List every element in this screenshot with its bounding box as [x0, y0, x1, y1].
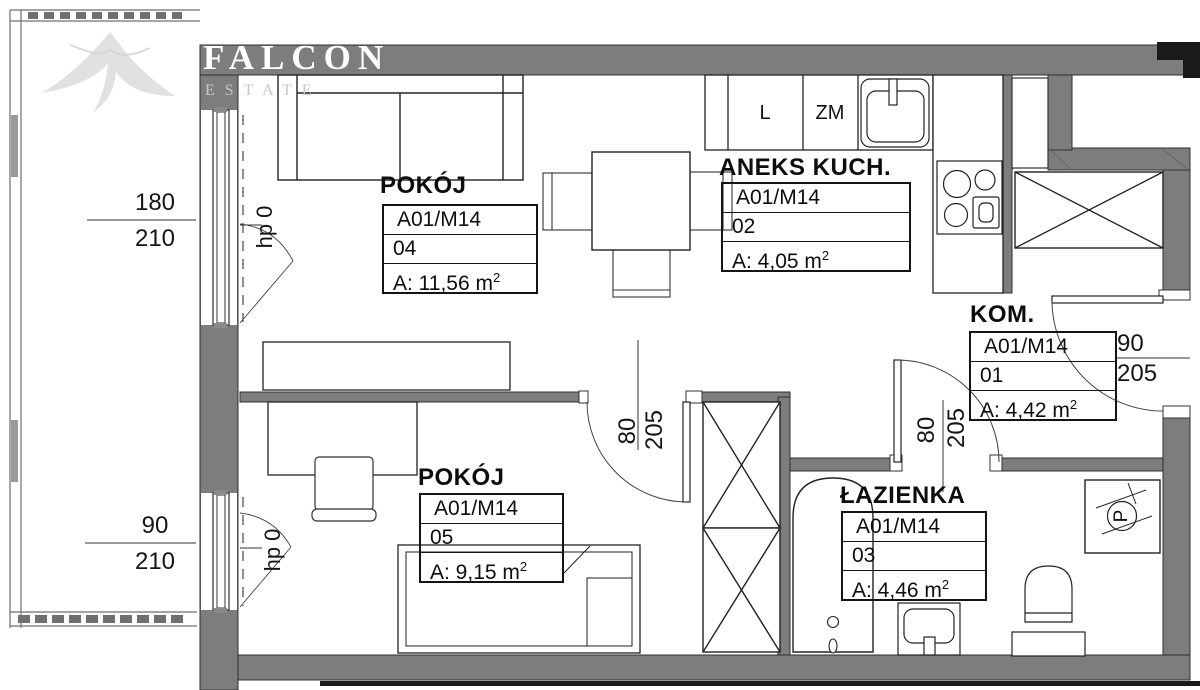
- fridge-label: L: [740, 102, 790, 125]
- room-title-kom: KOM.: [970, 301, 1035, 329]
- dining-table: [592, 152, 690, 250]
- dim-window-top-sill: hp 0: [252, 196, 278, 258]
- dim-door-entry-height: 205: [1117, 360, 1187, 388]
- room-area: A: 4,46 m2: [843, 571, 985, 599]
- room-area: A: 4,42 m2: [971, 391, 1115, 419]
- room-number: 01: [971, 362, 1115, 391]
- room-table-aneks: A01/M14 02 A: 4,05 m2: [721, 182, 911, 272]
- room-number: 04: [384, 235, 536, 264]
- washer-label: P: [1109, 501, 1135, 531]
- floorplan-page: FALCON ESTATE POKÓJ A01/M14 04 A: 11,56 …: [0, 0, 1200, 690]
- watermark-brand: FALCON: [203, 38, 390, 78]
- sideboard: [263, 342, 510, 390]
- falcon-logo-watermark: [42, 32, 175, 113]
- dim-door-room-width: 80: [615, 401, 641, 461]
- shaft: [1012, 78, 1048, 168]
- room-table-pokoj-05: A01/M14 05 A: 9,15 m2: [419, 493, 564, 583]
- dim-window-top-height: 210: [95, 225, 215, 253]
- dishwasher-label: ZM: [805, 102, 855, 125]
- room-table-kom: A01/M14 01 A: 4,42 m2: [969, 331, 1117, 421]
- toilet: [1012, 566, 1085, 656]
- cooktop: [937, 161, 1002, 234]
- room-title-pokoj-04: POKÓJ: [380, 172, 467, 200]
- wardrobe-hall: [1015, 172, 1163, 248]
- dining-chair-left: [543, 173, 592, 230]
- room-unit: A01/M14: [971, 333, 1115, 362]
- room-unit: A01/M14: [723, 184, 909, 213]
- room-unit: A01/M14: [421, 495, 562, 524]
- room-number: 02: [723, 213, 909, 242]
- room-table-pokoj-04: A01/M14 04 A: 11,56 m2: [382, 204, 538, 294]
- room-number: 03: [843, 542, 985, 571]
- dining-chair-bottom: [613, 250, 670, 297]
- room-area: A: 9,15 m2: [421, 553, 562, 581]
- dim-window-bottom-sill: hp 0: [260, 519, 286, 581]
- room-unit: A01/M14: [843, 513, 985, 542]
- wardrobe-center: [703, 402, 780, 652]
- kitchen-sink: [861, 79, 929, 147]
- watermark-subtitle: ESTATE: [205, 82, 322, 100]
- room-title-lazienka: ŁAZIENKA: [840, 482, 965, 510]
- dim-door-bathroom-height: 205: [944, 393, 970, 463]
- desk-chair: [312, 457, 376, 521]
- room-area: A: 11,56 m2: [384, 264, 536, 292]
- dim-window-bottom-width: 90: [95, 512, 215, 540]
- dim-door-bathroom-width: 80: [914, 400, 940, 460]
- room-area: A: 4,05 m2: [723, 242, 909, 270]
- dim-window-top-width: 180: [95, 189, 215, 217]
- room-title-aneks: ANEKS KUCH.: [719, 154, 891, 182]
- dim-window-bottom-height: 210: [95, 548, 215, 576]
- room-unit: A01/M14: [384, 206, 536, 235]
- room-number: 05: [421, 524, 562, 553]
- room-table-lazienka: A01/M14 03 A: 4,46 m2: [841, 511, 987, 601]
- dim-door-entry-width: 90: [1117, 330, 1187, 358]
- room-title-pokoj-05: POKÓJ: [418, 464, 505, 492]
- washbasin: [898, 603, 960, 655]
- dim-door-room-height: 205: [642, 395, 668, 465]
